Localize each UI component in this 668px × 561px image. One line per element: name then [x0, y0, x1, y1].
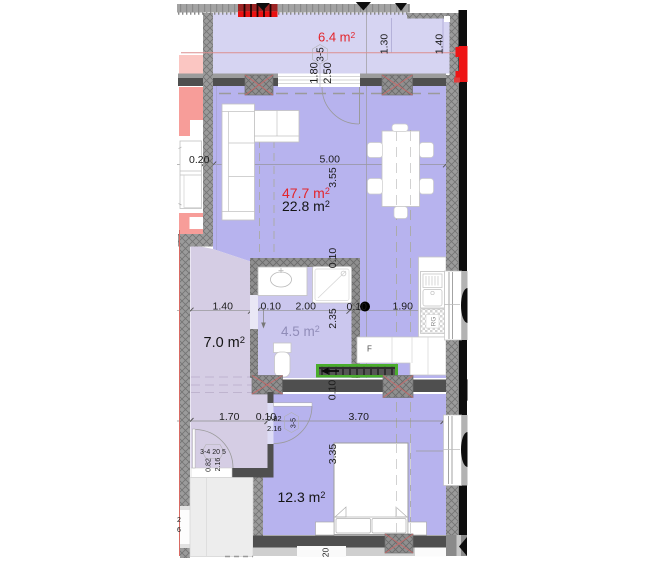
svg-text:0.82: 0.82 — [267, 414, 282, 423]
svg-text:2.16: 2.16 — [267, 424, 282, 433]
svg-text:1.40: 1.40 — [213, 301, 234, 313]
svg-text:0.10: 0.10 — [261, 301, 282, 313]
svg-text:0.10: 0.10 — [327, 380, 339, 401]
svg-text:F: F — [367, 345, 372, 354]
svg-text:1.90: 1.90 — [393, 301, 414, 313]
svg-text:6: 6 — [177, 527, 181, 534]
svg-text:12.3 m2: 12.3 m2 — [278, 489, 326, 505]
svg-text:0.20: 0.20 — [189, 154, 210, 166]
svg-text:2.50: 2.50 — [322, 62, 334, 83]
svg-text:RG: RG — [431, 317, 438, 327]
svg-text:3.55: 3.55 — [327, 167, 339, 188]
svg-text:0.82: 0.82 — [206, 458, 213, 472]
svg-text:2.00: 2.00 — [296, 301, 317, 313]
svg-text:4.5 m2: 4.5 m2 — [281, 324, 320, 339]
svg-text:6.4 m2: 6.4 m2 — [318, 30, 356, 45]
svg-text:7.0 m2: 7.0 m2 — [204, 335, 246, 351]
svg-text:1.80: 1.80 — [309, 62, 321, 83]
svg-text:1.70: 1.70 — [219, 411, 240, 423]
svg-text:22.8 m2: 22.8 m2 — [282, 198, 330, 214]
svg-text:2.16: 2.16 — [215, 458, 222, 472]
svg-text:5.00: 5.00 — [320, 154, 341, 166]
svg-text:2: 2 — [177, 517, 181, 524]
svg-text:3-5: 3-5 — [316, 47, 327, 62]
svg-text:0.10: 0.10 — [347, 301, 368, 313]
svg-text:3-4 20 5: 3-4 20 5 — [200, 449, 226, 456]
svg-text:1.40: 1.40 — [434, 34, 446, 55]
svg-text:3.35: 3.35 — [327, 444, 339, 465]
svg-text:1.30: 1.30 — [379, 34, 391, 55]
svg-text:3.70: 3.70 — [349, 411, 370, 423]
svg-text:20: 20 — [321, 548, 331, 558]
svg-text:3-5: 3-5 — [291, 418, 298, 428]
svg-text:2.35: 2.35 — [327, 308, 339, 329]
svg-text:0.10: 0.10 — [327, 248, 339, 269]
